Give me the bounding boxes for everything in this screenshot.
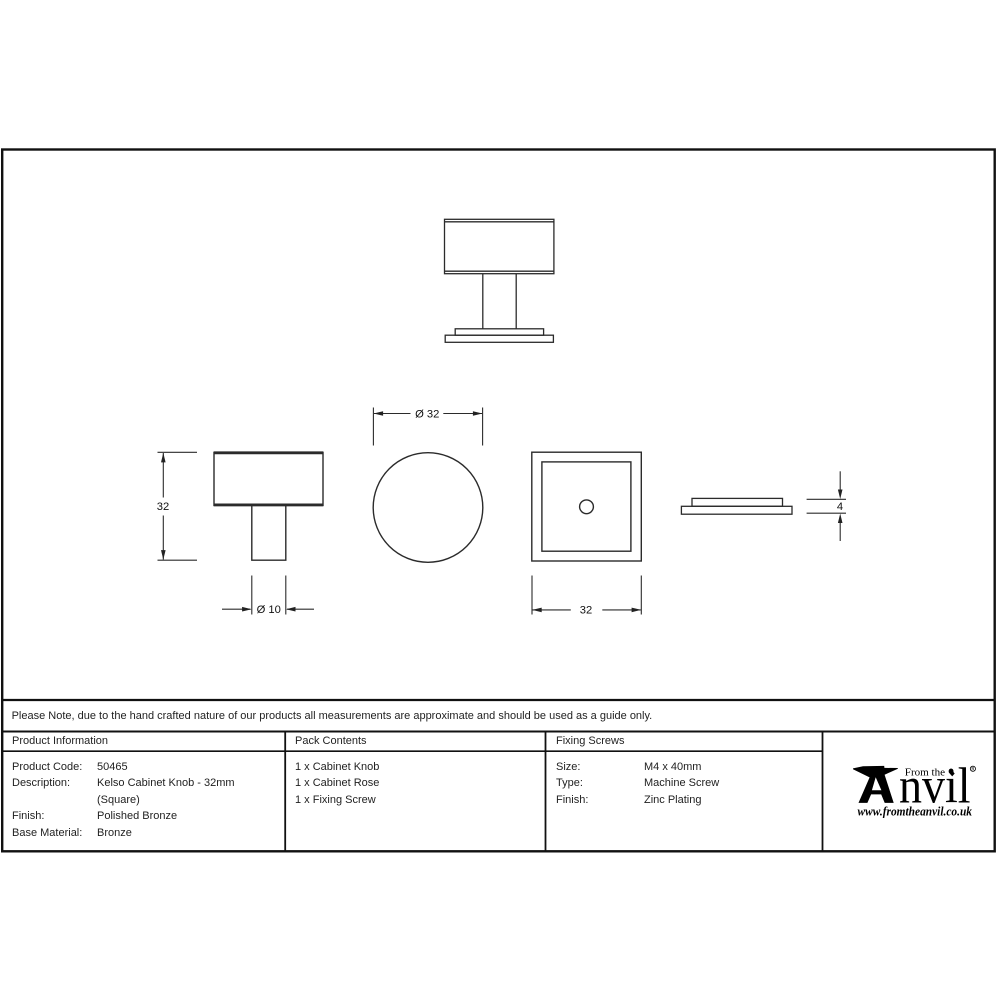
svg-text:www.fromtheanvil.co.uk: www.fromtheanvil.co.uk (858, 804, 973, 818)
svg-text:32: 32 (580, 605, 592, 617)
svg-text:4: 4 (837, 501, 843, 513)
svg-text:32: 32 (157, 501, 169, 513)
svg-text:Ø 32: Ø 32 (415, 408, 439, 420)
svg-text:R: R (971, 768, 975, 773)
svg-text:From the: From the (905, 766, 945, 778)
svg-text:Ø 10: Ø 10 (257, 604, 281, 616)
